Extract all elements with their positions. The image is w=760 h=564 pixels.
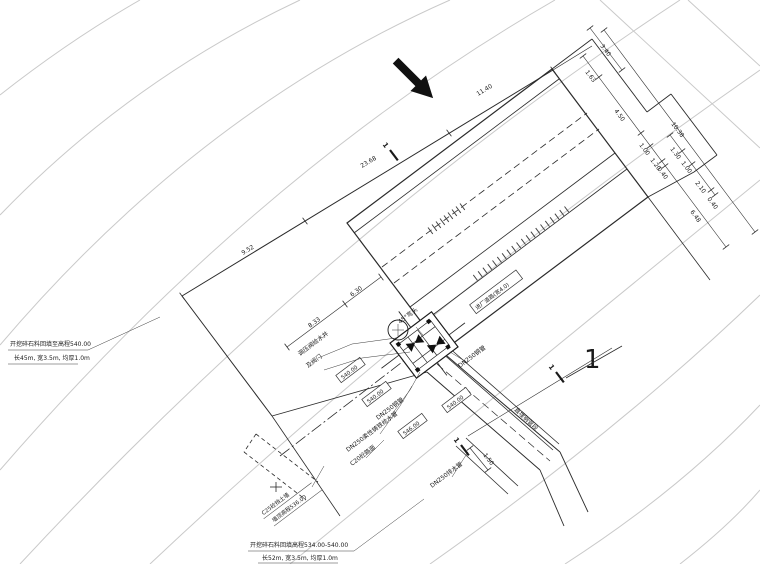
valve-well-label-2: 及阀门 <box>304 352 323 369</box>
elevation-box-2: 540.00 <box>362 381 392 407</box>
road-label: 进厂道路(宽4.0) <box>474 281 511 312</box>
left-note: 开挖碎石料回填至高程540.00 长45m, 宽3.5m, 均厚1.0m <box>8 317 160 364</box>
dim-6-30: 6.30 <box>349 285 364 299</box>
section-number-large: 1 <box>566 345 622 378</box>
steel-pipe-label-a: DN250钢管 <box>456 344 487 370</box>
mid-dimensions: 8.33 6.30 <box>285 274 384 350</box>
pipeline-dashed-2 <box>394 129 599 283</box>
section-marker-bottom: 1 <box>452 436 472 458</box>
section-number: 1 <box>452 436 461 445</box>
section-marker-top: 1 <box>381 141 401 163</box>
cad-site-plan: 9.52 23.68 11.40 3.40 10.38 <box>0 0 760 564</box>
site-boundary: 9.52 23.68 11.40 <box>180 46 592 516</box>
elevation-box-1: 540.00 <box>336 357 366 383</box>
dim-4-50: 4.50 <box>612 108 626 123</box>
dim-6-48: 6.48 <box>688 209 702 224</box>
wall-note: C25砼挡土墙 墙顶高程536.00 <box>258 473 322 528</box>
dim-10-38: 10.38 <box>669 121 685 139</box>
road-centerline <box>437 364 550 461</box>
bottom-note-line2: 长52m, 宽3.5m, 均厚1.0m <box>262 554 338 562</box>
valve-well-label-1: 调压阀给水井 <box>296 330 330 358</box>
pipeline-dashed-1 <box>382 113 587 267</box>
section-number: 1 <box>381 141 390 150</box>
dim-1-00b: 1.00 <box>679 160 693 175</box>
right-dimensions: 3.40 10.38 1.63 4.50 1.00 1.20 0.40 6.48… <box>580 26 758 250</box>
direction-arrow-icon <box>388 53 441 106</box>
drain-pipe-label: DN250排水管 <box>428 460 464 490</box>
building-outline <box>347 39 717 351</box>
dim-0-40b: 0.40 <box>705 196 719 211</box>
dim-9-52: 9.52 <box>240 244 255 257</box>
road-label-box: 进厂道路(宽4.0) <box>470 270 523 314</box>
elevation-box-4: 540.00 <box>442 387 472 413</box>
dim-1-63: 1.63 <box>583 69 597 84</box>
hatch-comb-1 <box>475 206 571 278</box>
dim-23-68: 23.68 <box>359 155 377 170</box>
elevation-box-3: 546.00 <box>398 413 428 439</box>
dim-11-40: 11.40 <box>475 83 493 98</box>
section-number: 1 <box>547 363 556 372</box>
dim-8-33: 8.33 <box>307 316 322 330</box>
left-note-line1: 开挖碎石料回填至高程540.00 <box>10 340 91 348</box>
road-and-pipes: 1.50 <box>280 336 612 526</box>
contour-lines <box>0 0 760 564</box>
left-note-line2: 长45m, 宽3.5m, 均厚1.0m <box>14 354 90 362</box>
bottom-note-line1: 开挖碎石料回填高程534.00-540.00 <box>250 541 348 549</box>
site-plan-drawing: 9.52 23.68 11.40 3.40 10.38 <box>0 0 760 564</box>
